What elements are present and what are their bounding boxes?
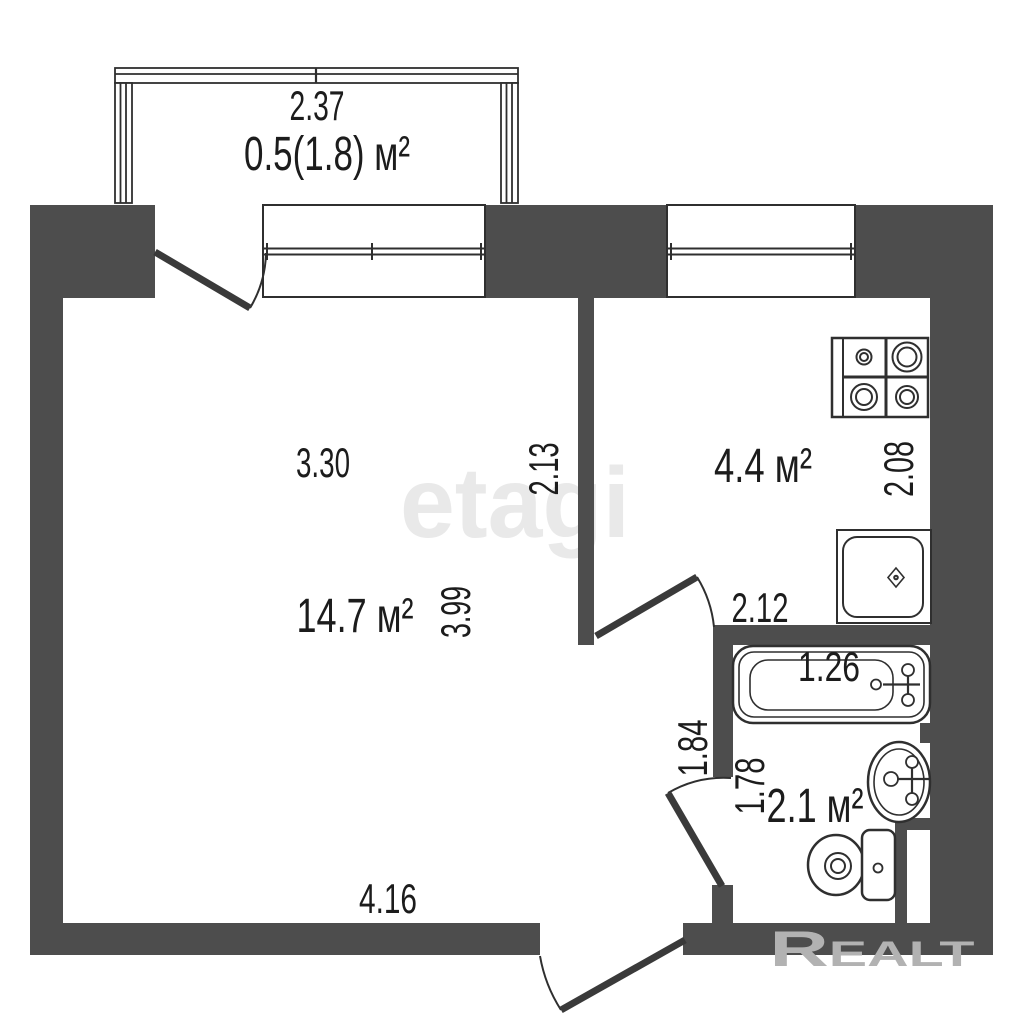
window-living-room <box>263 205 485 297</box>
glazing-band-right <box>501 83 518 203</box>
wall-segment <box>30 923 540 955</box>
washbasin-icon <box>868 742 930 822</box>
dim-living-bottom-width: 4.16 <box>359 875 417 922</box>
dim-partition-height: 2.13 <box>520 443 567 496</box>
dim-kitchen-width: 2.12 <box>732 584 789 631</box>
dim-bathtub-length: 1.26 <box>798 643 860 690</box>
wall-segment <box>485 205 667 298</box>
wall-segment <box>895 818 907 923</box>
dim-living-depth: 3.99 <box>432 586 479 638</box>
floor-plan-image: etagi <box>0 0 1024 1024</box>
dim-kitchen-depth: 2.08 <box>875 441 922 497</box>
area-bathroom: 2.1 м² <box>767 780 864 833</box>
basin-tap-knob <box>906 756 918 768</box>
wall-segment <box>920 723 930 743</box>
window-frame <box>263 205 485 297</box>
wall-segment <box>578 298 594 645</box>
basin-tap-knob <box>906 793 918 805</box>
toilet-bowl <box>808 835 864 895</box>
basin-drain <box>884 772 898 786</box>
dim-balcony-width: 2.37 <box>290 82 345 129</box>
watermark-realt: Realt <box>770 921 975 977</box>
window-frame <box>667 205 855 297</box>
tub-tap-knob <box>902 664 914 676</box>
glazing-band-left <box>115 83 132 203</box>
wall-segment <box>713 645 733 777</box>
window-kitchen <box>667 205 855 297</box>
floor-plan-page: etagi <box>0 0 1024 1024</box>
basin-outer <box>868 742 930 822</box>
wall-segment <box>30 205 63 955</box>
wall-segment <box>930 205 993 955</box>
toilet-icon <box>808 830 895 900</box>
wall-segment <box>712 885 733 923</box>
area-kitchen: 4.4 м² <box>714 440 812 493</box>
toilet-tank <box>862 830 895 900</box>
sink-counter <box>837 530 931 623</box>
sink-icon <box>837 530 931 623</box>
area-living-room: 14.7 м² <box>297 590 414 643</box>
area-balcony: 0.5(1.8) м² <box>244 128 410 181</box>
dim-living-width: 3.30 <box>296 439 350 486</box>
dim-hall-depth: 1.84 <box>669 720 716 777</box>
watermark-etagi: etagi <box>400 447 630 559</box>
stove-icon <box>832 338 928 417</box>
tub-tap-knob <box>902 694 914 706</box>
